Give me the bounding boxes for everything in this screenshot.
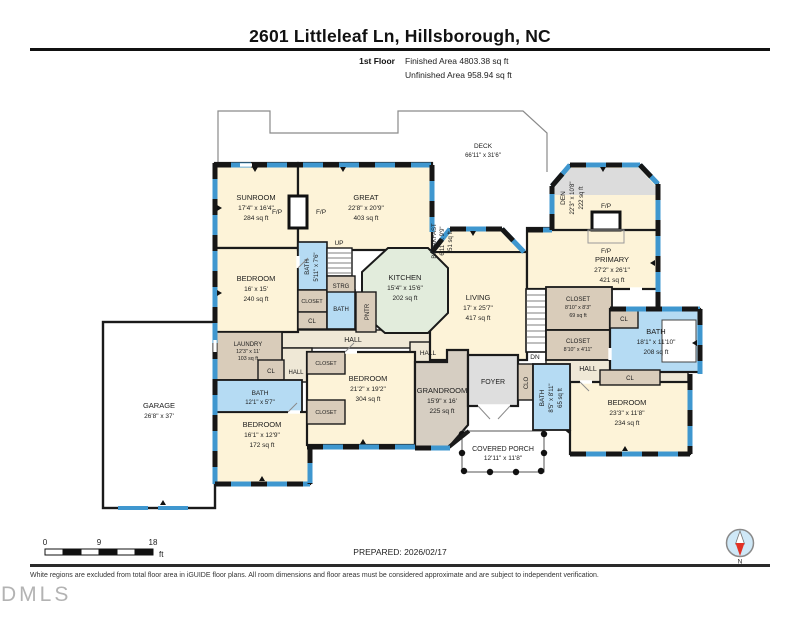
label-kitchen-area: 202 sq ft: [393, 295, 418, 302]
label-closet1: CLOSET: [566, 297, 590, 303]
label-bedroom3: BEDROOM: [349, 374, 388, 383]
label-laundry-dims: 12'3" x 11': [236, 349, 260, 355]
label-sunroom: SUNROOM: [236, 193, 275, 202]
stairs-up: [327, 248, 352, 276]
label-closet1-dims: 8'10" x 8'3": [565, 305, 591, 311]
label-great-dims: 22'8" x 20'9": [348, 205, 384, 212]
label-grandroom-dims: 15'9" x 16': [427, 398, 457, 405]
svg-text:BATH: BATH: [305, 259, 311, 275]
label-sunroom-area: 284 sq ft: [244, 215, 269, 222]
label-bath4: BATH: [646, 327, 665, 336]
label-great-area: 403 sq ft: [354, 215, 379, 222]
label-living-area: 417 sq ft: [466, 315, 491, 322]
floor-label: 1st Floor: [250, 56, 395, 66]
label-cl-laundry: CL: [267, 369, 275, 375]
label-kitchen-dims: 15'4" x 15'6": [387, 285, 423, 292]
label-bedroom4: BEDROOM: [608, 398, 647, 407]
label-hall-right: HALL: [579, 366, 597, 373]
label-bath2: BATH: [252, 390, 269, 397]
stairs-dn: [526, 289, 546, 352]
svg-text:65 sq ft: 65 sq ft: [558, 388, 564, 408]
label-closet-bed3a: CLOSET: [315, 361, 337, 367]
label-clo: CLO: [524, 377, 530, 390]
svg-text:BATH: BATH: [539, 389, 546, 406]
label-garage: GARAGE: [143, 401, 175, 410]
label-bath4-area: 208 sq ft: [644, 349, 669, 356]
label-bedroom2-dims: 16'1" x 12'9": [244, 432, 280, 439]
label-bedroom4-area: 234 sq ft: [615, 420, 640, 427]
svg-text:PNTR: PNTR: [365, 303, 371, 320]
label-laundry-area: 103 sq ft: [238, 356, 259, 362]
footer-rule: [30, 564, 770, 567]
svg-text:BREAKFAST: BREAKFAST: [432, 223, 438, 259]
label-laundry: LAUNDRY: [234, 342, 263, 348]
label-porch: COVERED PORCH: [472, 446, 534, 453]
label-cl-bed1: CL: [308, 319, 316, 325]
label-sunroom-dims: 17'4" x 16'4": [238, 205, 274, 212]
svg-text:18: 18: [149, 538, 158, 547]
label-bedroom2: BEDROOM: [243, 420, 282, 429]
label-hall-mid: HALL: [420, 350, 437, 357]
header-rule: [30, 48, 770, 51]
label-bedroom3-dims: 21'2" x 19'2": [350, 386, 386, 393]
label-closet2: CLOSET: [566, 339, 590, 345]
svg-text:DEN: DEN: [560, 191, 567, 205]
label-closet-bed3b: CLOSET: [315, 410, 337, 416]
label-primary: PRIMARY: [595, 255, 629, 264]
label-foyer: FOYER: [481, 379, 505, 386]
prepared-date: PREPARED: 2026/02/17: [0, 547, 800, 557]
label-fp-den: F/P: [601, 203, 611, 210]
svg-text:222 sq ft: 222 sq ft: [579, 186, 585, 209]
label-bedroom2-area: 172 sq ft: [250, 442, 275, 449]
label-grandroom-area: 225 sq ft: [430, 408, 455, 415]
deck-dims: 66'11" x 31'6": [465, 153, 501, 159]
svg-text:0: 0: [43, 538, 48, 547]
label-primary-area: 421 sq ft: [600, 277, 625, 284]
label-garage-dims: 26'8" x 37': [144, 413, 174, 420]
page-title: 2601 Littleleaf Ln, Hillsborough, NC: [0, 26, 800, 47]
label-dn: DN: [530, 354, 540, 361]
label-up: UP: [334, 240, 343, 247]
label-closet1-area: 69 sq ft: [569, 313, 587, 319]
label-living-dims: 17' x 25'7": [463, 305, 493, 312]
svg-text:5'11" x 7'6": 5'11" x 7'6": [314, 252, 320, 281]
label-bedroom1-dims: 16' x 15': [244, 286, 268, 293]
room-bath1: [298, 242, 327, 290]
label-closet-bed1: CLOSET: [301, 299, 323, 305]
label-bath-small: BATH: [333, 307, 349, 313]
svg-text:51 sq ft: 51 sq ft: [448, 231, 454, 251]
svg-text:6'11" x 9'9": 6'11" x 9'9": [440, 226, 446, 255]
label-strg: STRG: [333, 284, 350, 290]
watermark: DMLS: [1, 583, 71, 607]
label-primary-dims: 27'2" x 26'1": [594, 267, 630, 274]
label-bath4-dims: 18'1" x 11'10": [637, 339, 676, 346]
disclaimer-text: White regions are excluded from total fl…: [30, 572, 750, 579]
room-bedroom4: [570, 382, 690, 454]
finished-area: Finished Area 4803.38 sq ft: [405, 56, 509, 66]
label-hall-main: HALL: [344, 337, 362, 344]
label-bedroom1-area: 240 sq ft: [244, 296, 269, 303]
room-closet2: [546, 330, 612, 360]
svg-text:8'5" x 8'11": 8'5" x 8'11": [549, 383, 555, 412]
room-primary: [527, 228, 658, 289]
label-bedroom3-area: 304 sq ft: [356, 396, 381, 403]
label-fp-great: F/P: [316, 209, 326, 216]
label-living: LIVING: [466, 293, 491, 302]
label-cl-bed4: CL: [626, 376, 634, 382]
label-kitchen: KITCHEN: [389, 273, 422, 282]
svg-text:CLO: CLO: [524, 377, 530, 390]
label-hall-left: HALL: [288, 370, 304, 376]
deck-label: DECK: [474, 143, 493, 150]
label-bedroom1: BEDROOM: [237, 274, 276, 283]
label-grandroom: GRANDROOM: [417, 386, 467, 395]
label-great: GREAT: [353, 193, 379, 202]
unfinished-area: Unfinished Area 958.94 sq ft: [405, 70, 512, 80]
label-pntr: PNTR: [365, 303, 371, 320]
svg-text:22'3" x 10'8": 22'3" x 10'8": [570, 182, 576, 215]
label-fp-sunroom: F/P: [272, 209, 282, 216]
svg-text:9: 9: [97, 538, 102, 547]
label-bedroom4-dims: 23'3" x 11'8": [609, 410, 645, 417]
floor-plan-sheet: 2601 Littleleaf Ln, Hillsborough, NC 1st…: [0, 0, 800, 618]
label-fp-primary: F/P: [601, 248, 611, 255]
label-cl-bath4: CL: [620, 317, 628, 323]
floor-plan-drawing: DECK 66'11" x 31'6": [0, 0, 800, 618]
fireplace-great: [289, 196, 307, 228]
label-closet2-dims: 8'10" x 4'11": [564, 347, 593, 353]
label-porch-dims: 12'11" x 11'8": [484, 455, 523, 462]
label-bath2-dims: 12'1" x 5'7": [245, 400, 275, 406]
